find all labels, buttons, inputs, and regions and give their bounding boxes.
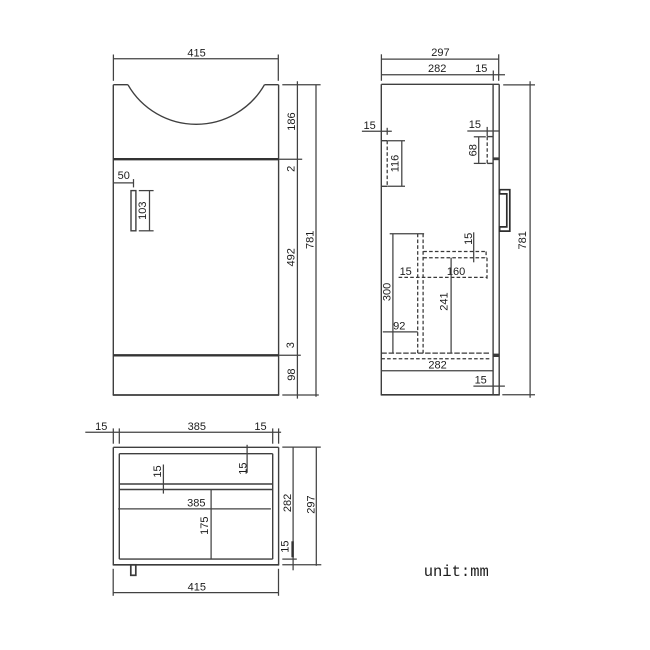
svg-text:282: 282 xyxy=(428,63,446,75)
svg-text:15: 15 xyxy=(363,120,375,132)
svg-text:2: 2 xyxy=(286,166,298,172)
svg-text:15: 15 xyxy=(475,63,487,75)
svg-text:116: 116 xyxy=(390,155,402,173)
svg-text:300: 300 xyxy=(381,283,393,301)
svg-text:15: 15 xyxy=(95,421,107,433)
svg-text:unit:mm: unit:mm xyxy=(424,563,489,581)
svg-text:15: 15 xyxy=(475,375,487,387)
svg-text:385: 385 xyxy=(187,498,205,510)
svg-text:68: 68 xyxy=(468,144,480,156)
svg-text:160: 160 xyxy=(447,266,465,278)
svg-text:241: 241 xyxy=(439,292,451,310)
svg-text:175: 175 xyxy=(199,517,211,535)
svg-text:492: 492 xyxy=(286,248,298,266)
svg-text:15: 15 xyxy=(254,421,266,433)
svg-text:92: 92 xyxy=(393,321,405,333)
svg-text:15: 15 xyxy=(469,119,481,131)
svg-text:282: 282 xyxy=(282,494,294,512)
svg-text:103: 103 xyxy=(137,202,149,220)
svg-text:186: 186 xyxy=(286,112,298,130)
svg-text:781: 781 xyxy=(517,231,529,249)
svg-text:15: 15 xyxy=(463,233,475,245)
svg-text:297: 297 xyxy=(306,495,318,513)
svg-text:385: 385 xyxy=(188,421,206,433)
svg-text:415: 415 xyxy=(187,48,205,60)
svg-text:15: 15 xyxy=(152,465,164,477)
svg-text:15: 15 xyxy=(280,540,292,552)
svg-text:15: 15 xyxy=(237,462,249,474)
svg-text:98: 98 xyxy=(286,368,298,380)
svg-text:3: 3 xyxy=(285,342,297,348)
svg-text:297: 297 xyxy=(431,47,449,59)
svg-text:415: 415 xyxy=(188,581,206,593)
svg-text:50: 50 xyxy=(118,170,130,182)
svg-text:781: 781 xyxy=(304,231,316,249)
svg-text:282: 282 xyxy=(428,360,446,372)
svg-text:15: 15 xyxy=(400,266,412,278)
